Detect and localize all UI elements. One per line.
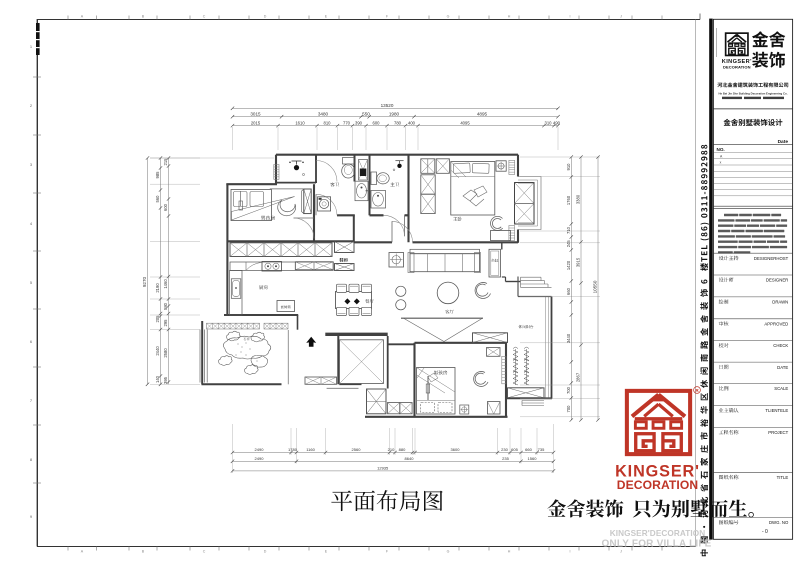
- svg-text:3380: 3380: [576, 194, 581, 204]
- svg-text:2490: 2490: [255, 447, 265, 452]
- svg-text:3915: 3915: [576, 257, 581, 267]
- svg-text:310: 310: [545, 120, 553, 125]
- svg-text:1760: 1760: [566, 195, 571, 205]
- svg-text:A: A: [720, 154, 723, 158]
- svg-text:4: 4: [30, 221, 33, 226]
- svg-text:660: 660: [525, 447, 532, 452]
- svg-text:D: D: [264, 15, 267, 19]
- svg-text:TLIENTELE: TLIENTELE: [765, 408, 788, 413]
- svg-text:TITLE: TITLE: [777, 475, 789, 480]
- svg-text:4895: 4895: [477, 111, 488, 116]
- svg-text:770: 770: [343, 120, 351, 125]
- svg-text:APPROVED: APPROVED: [764, 322, 788, 327]
- svg-text:1560: 1560: [528, 456, 538, 461]
- svg-text:4095: 4095: [460, 120, 470, 125]
- svg-text:3480: 3480: [318, 111, 329, 116]
- svg-text:G: G: [447, 550, 450, 554]
- svg-text:400: 400: [408, 120, 416, 125]
- svg-text:E: E: [325, 15, 328, 19]
- svg-text:1460: 1460: [163, 279, 168, 289]
- svg-text:Date: Date: [778, 139, 789, 145]
- svg-text:245: 245: [566, 240, 571, 248]
- svg-text:2015: 2015: [251, 120, 261, 125]
- svg-text:DECORATION: DECORATION: [617, 478, 698, 492]
- svg-text:5: 5: [30, 280, 33, 285]
- svg-text:230: 230: [501, 447, 508, 452]
- svg-text:880: 880: [399, 447, 406, 452]
- svg-text:2: 2: [30, 103, 33, 108]
- svg-text:PROJECT: PROJECT: [768, 430, 788, 435]
- svg-text:235: 235: [502, 456, 509, 461]
- svg-text:ONLY FOR VILLA LIFE: ONLY FOR VILLA LIFE: [601, 539, 711, 550]
- svg-text:2440: 2440: [155, 346, 160, 356]
- svg-text:1780: 1780: [288, 447, 298, 452]
- svg-text:780: 780: [394, 120, 402, 125]
- svg-text:H: H: [508, 15, 511, 19]
- svg-text:8640: 8640: [405, 456, 415, 461]
- svg-text:I: I: [570, 15, 571, 19]
- svg-text:295: 295: [163, 319, 168, 327]
- svg-text:13520: 13520: [381, 103, 394, 108]
- svg-text:DECORATION: DECORATION: [723, 65, 751, 70]
- svg-text:I: I: [570, 550, 571, 554]
- svg-text:J: J: [620, 550, 622, 554]
- svg-text:605: 605: [511, 447, 518, 452]
- svg-text:8: 8: [30, 457, 33, 462]
- svg-text:205: 205: [155, 315, 160, 323]
- svg-text:F: F: [386, 15, 389, 19]
- svg-text:F: F: [386, 550, 389, 554]
- svg-text:700: 700: [566, 386, 571, 394]
- svg-text:700: 700: [566, 405, 571, 413]
- svg-text:215: 215: [163, 158, 168, 166]
- svg-text:6: 6: [30, 339, 33, 344]
- svg-text:1: 1: [30, 44, 33, 49]
- svg-text:390: 390: [355, 120, 363, 125]
- svg-text:B: B: [142, 550, 145, 554]
- svg-text:550: 550: [362, 111, 370, 116]
- svg-text:D: D: [264, 550, 267, 554]
- svg-text:DATE: DATE: [777, 365, 788, 370]
- svg-text:CHECK: CHECK: [773, 343, 788, 348]
- svg-text:580: 580: [163, 302, 168, 310]
- svg-text:SCALE: SCALE: [774, 386, 788, 391]
- svg-text:A: A: [81, 15, 84, 19]
- svg-text:J: J: [620, 15, 622, 19]
- svg-text:3: 3: [30, 162, 33, 167]
- svg-text:395: 395: [163, 376, 168, 384]
- svg-text:2867: 2867: [576, 372, 581, 382]
- svg-text:560: 560: [155, 195, 160, 203]
- svg-text:KINGSER'DECORATION: KINGSER'DECORATION: [610, 529, 705, 538]
- svg-text:1160: 1160: [306, 447, 315, 452]
- svg-text:1980: 1980: [389, 111, 400, 116]
- svg-text:3440: 3440: [566, 333, 571, 343]
- svg-text:2490: 2490: [255, 456, 265, 461]
- svg-text:660: 660: [566, 287, 571, 295]
- svg-text:3015: 3015: [250, 111, 261, 116]
- svg-text:C: C: [203, 15, 206, 19]
- svg-text:- 0: - 0: [762, 529, 768, 535]
- svg-text:DRAWN: DRAWN: [772, 300, 788, 305]
- svg-text:3600: 3600: [451, 447, 461, 452]
- svg-text:DESIGNERHOST: DESIGNERHOST: [754, 256, 789, 261]
- svg-text:985: 985: [155, 171, 160, 179]
- svg-text:2560: 2560: [352, 447, 362, 452]
- svg-text:1420: 1420: [566, 260, 571, 270]
- svg-text:C: C: [203, 550, 206, 554]
- svg-text:H: H: [508, 550, 511, 554]
- svg-text:735: 735: [538, 447, 545, 452]
- svg-text:810: 810: [324, 120, 332, 125]
- svg-text:9270: 9270: [142, 276, 147, 287]
- svg-text:He Bei Jin She Building Decora: He Bei Jin She Building Decoration Engin…: [719, 92, 788, 96]
- svg-text:600: 600: [373, 120, 381, 125]
- svg-text:490: 490: [553, 120, 561, 125]
- svg-text:910: 910: [566, 163, 571, 171]
- svg-text:E: E: [325, 550, 328, 554]
- svg-text:NO.: NO.: [717, 147, 725, 152]
- svg-text:DWG. NO: DWG. NO: [769, 520, 789, 525]
- svg-text:x: x: [720, 160, 722, 164]
- svg-text:10550: 10550: [593, 280, 598, 293]
- svg-text:DESIGNER: DESIGNER: [766, 278, 788, 283]
- svg-text:600: 600: [163, 203, 168, 211]
- svg-text:12935: 12935: [377, 466, 389, 471]
- svg-text:B: B: [142, 15, 145, 19]
- svg-text:R: R: [695, 388, 699, 393]
- svg-text:710: 710: [566, 226, 571, 234]
- svg-text:9: 9: [30, 514, 33, 519]
- svg-text:2580: 2580: [163, 348, 168, 358]
- svg-text:1610: 1610: [295, 120, 305, 125]
- svg-text:140: 140: [155, 375, 160, 383]
- svg-text:A: A: [81, 550, 84, 554]
- svg-text:7: 7: [30, 398, 33, 403]
- svg-text:210: 210: [388, 447, 395, 452]
- svg-text:G: G: [447, 15, 450, 19]
- svg-text:2190: 2190: [155, 283, 160, 293]
